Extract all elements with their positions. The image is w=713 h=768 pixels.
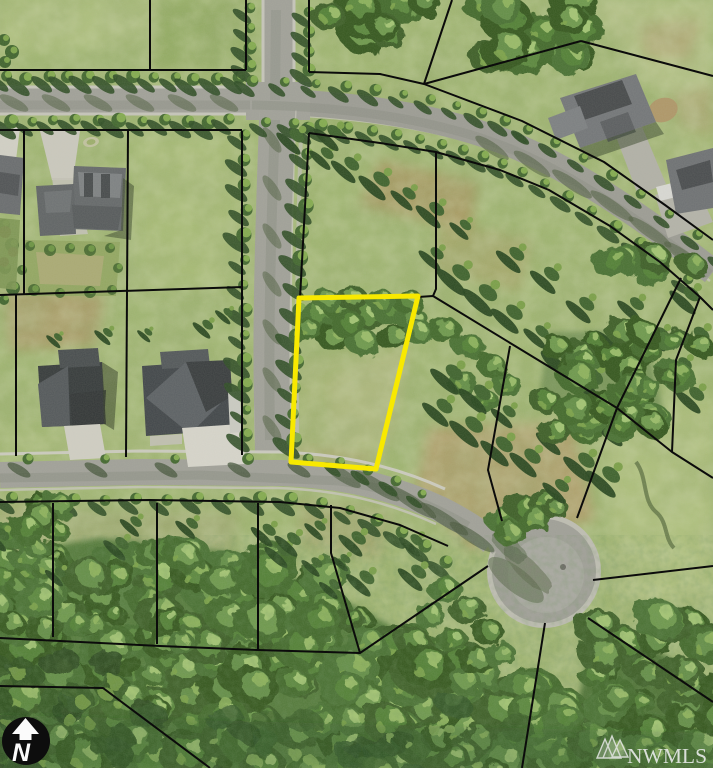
svg-text:N: N [12, 739, 31, 767]
svg-text:NWMLS: NWMLS [627, 744, 707, 768]
